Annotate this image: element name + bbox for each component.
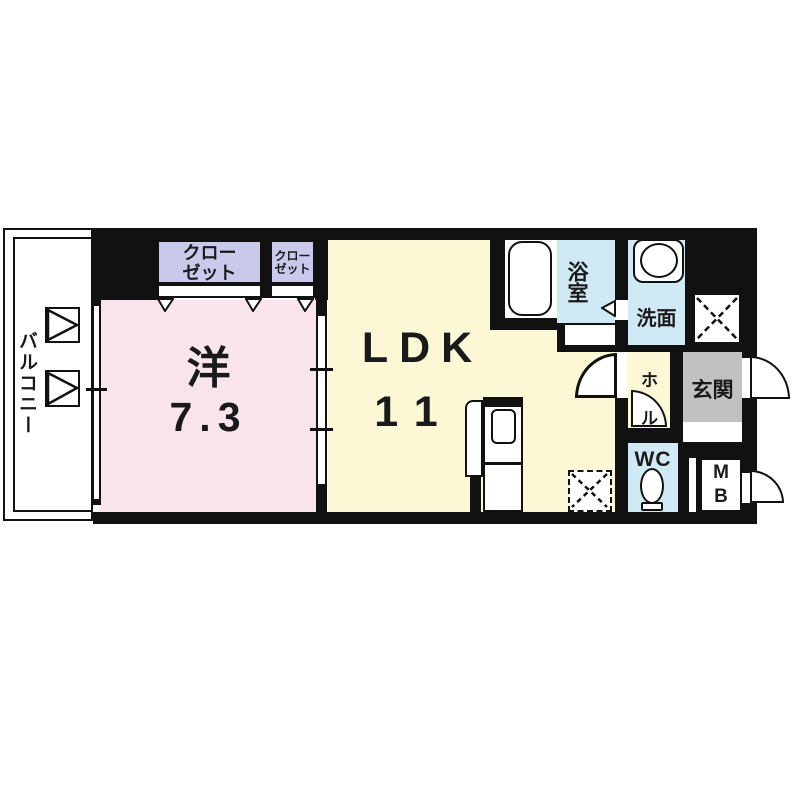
wall (315, 240, 328, 300)
bathtub-icon (508, 241, 552, 316)
dashed-cross-icon (695, 295, 739, 342)
sliding-door (316, 300, 327, 512)
western-room-label: 洋 (100, 332, 317, 396)
triangle-glyph (47, 372, 78, 405)
wall (557, 345, 757, 352)
sink-bowl-icon (640, 243, 678, 278)
pipe-space-box (692, 292, 742, 345)
closet-large-track (157, 284, 262, 298)
ldk-label: LDK (330, 324, 515, 373)
sliding-door-cap (316, 484, 327, 512)
wall (742, 398, 757, 473)
meter-box-line1: M (700, 461, 742, 485)
wall (615, 398, 628, 512)
meter-box-slit (689, 458, 696, 512)
wall (490, 237, 505, 330)
balcony-label: バルコニー (14, 318, 40, 448)
window-end-cap (92, 300, 101, 306)
meter-box-label: M B (700, 461, 742, 509)
entrance-door-arc (750, 356, 790, 399)
entrance-step (683, 422, 742, 442)
bath-counter (565, 323, 615, 345)
folding-door-icon (297, 298, 314, 312)
entrance-label: 玄関 (683, 374, 742, 404)
closet-small-label: クロー ゼット (270, 250, 315, 276)
balcony-partition-icon (45, 370, 80, 407)
bath-label: 浴室 (565, 247, 591, 317)
meter-box-door-arc (750, 470, 784, 503)
wall (615, 237, 628, 300)
closet-small-line2: ゼット (270, 263, 315, 276)
wall (93, 512, 757, 524)
hall-char-2: ル (641, 404, 658, 429)
floor-plan: バルコニー クロー ゼット クロー ゼット 浴室 洗面 (0, 0, 800, 800)
dashed-cross-icon (570, 472, 609, 509)
balcony-partition-icon (45, 307, 80, 343)
closet-large-label: クロー ゼット (157, 243, 262, 283)
wc-label: WC (628, 448, 678, 472)
meter-box-line2: B (700, 485, 742, 509)
ldk-size: 11 (330, 388, 500, 437)
kitchen-counter-leg (470, 477, 481, 512)
toilet-icon (640, 468, 664, 504)
washroom-label: 洗面 (628, 302, 685, 331)
toilet-tank-icon (641, 502, 663, 511)
appliance-space-box (568, 470, 612, 512)
wall (685, 228, 757, 292)
wall (615, 428, 683, 443)
triangle-glyph (47, 309, 78, 341)
wall (93, 240, 157, 300)
wall (557, 323, 565, 345)
kitchen-divider (484, 462, 522, 465)
folding-door-icon (157, 298, 174, 312)
bath-door-icon (601, 300, 616, 317)
closet-large-line2: ゼット (157, 263, 262, 283)
wall (93, 228, 757, 240)
sliding-door-cap (316, 300, 327, 316)
hall-char-1: ホ (641, 366, 658, 391)
western-room-size: 7.3 (100, 394, 317, 441)
wall (262, 240, 270, 298)
wall (615, 320, 628, 352)
window-end-cap (92, 499, 101, 505)
wall (685, 292, 692, 345)
wall (742, 292, 757, 358)
closet-large-line1: クロー (157, 243, 262, 263)
closet-small-track (270, 284, 315, 298)
folding-door-icon (245, 298, 262, 312)
